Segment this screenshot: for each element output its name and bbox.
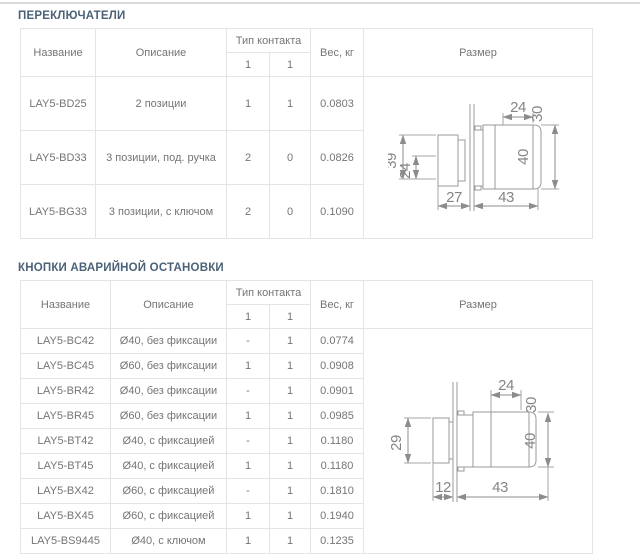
name-cell: LAY5-BX45 — [21, 504, 111, 529]
contact1-cell: 1 — [227, 354, 270, 379]
table-row: LAY5-BC42 Ø40, без фиксации - 1 0.0774 — [21, 329, 593, 354]
description-cell: Ø40, с фиксацией — [111, 429, 227, 454]
contact2-cell: 1 — [270, 479, 311, 504]
dim-top-right: 30 — [523, 397, 540, 413]
description-cell: Ø40, с ключом — [111, 529, 227, 554]
col-header-weight: Вес, кг — [311, 281, 364, 329]
dim-top: 24 — [498, 377, 514, 394]
col-subheader-contact-1: 1 — [227, 53, 270, 77]
button-outline — [433, 418, 449, 463]
name-cell: LAY5-BR45 — [21, 404, 111, 429]
description-cell: Ø40, без фиксации — [111, 379, 227, 404]
dim-right: 40 — [515, 149, 532, 165]
dim-top-right: 30 — [529, 106, 546, 122]
page-top-divider — [0, 2, 640, 4]
col-header-name: Название — [21, 281, 111, 329]
weight-cell: 0.1180 — [311, 454, 364, 479]
contact1-cell: - — [227, 329, 270, 354]
contact2-cell: 1 — [270, 77, 311, 131]
contact1-cell: - — [227, 429, 270, 454]
knob-step — [458, 140, 465, 181]
size-drawing-cell: 39 24 24 30 40 27 43 — [364, 77, 593, 239]
contact1-cell: - — [227, 379, 270, 404]
contact1-cell: 2 — [227, 131, 270, 185]
weight-cell: 0.0803 — [311, 77, 364, 131]
name-cell: LAY5-BR42 — [21, 379, 111, 404]
weight-cell: 0.0908 — [311, 354, 364, 379]
dim-bottom-left: 12 — [435, 479, 451, 496]
contact2-cell: 1 — [270, 454, 311, 479]
estop-dimension-drawing: 29 24 30 40 12 43 — [388, 375, 568, 507]
description-cell: Ø40, без фиксации — [111, 329, 227, 354]
col-subheader-contact-1: 1 — [227, 305, 270, 329]
contact2-cell: 1 — [270, 329, 311, 354]
weight-cell: 0.0826 — [311, 131, 364, 185]
col-subheader-contact-2: 1 — [270, 305, 311, 329]
name-cell: LAY5-BG33 — [21, 185, 96, 239]
weight-cell: 0.0985 — [311, 404, 364, 429]
contact2-cell: 0 — [270, 131, 311, 185]
name-cell: LAY5-BT42 — [21, 429, 111, 454]
description-cell: 2 позиции — [96, 77, 227, 131]
dim-bottom-right: 43 — [492, 479, 508, 496]
col-header-contact-type: Тип контакта — [227, 29, 311, 53]
name-cell: LAY5-BD33 — [21, 131, 96, 185]
dim-bottom-right: 43 — [498, 189, 514, 206]
col-header-name: Название — [21, 29, 96, 77]
name-cell: LAY5-BD25 — [21, 77, 96, 131]
col-header-description: Описание — [111, 281, 227, 329]
contact2-cell: 1 — [270, 504, 311, 529]
contact2-cell: 1 — [270, 529, 311, 554]
contact1-cell: - — [227, 479, 270, 504]
col-header-weight: Вес, кг — [311, 29, 364, 77]
button-step — [449, 422, 453, 459]
name-cell: LAY5-BC42 — [21, 329, 111, 354]
description-cell: 3 позиции, с ключом — [96, 185, 227, 239]
dim-left-outer: 29 — [388, 435, 405, 451]
weight-cell: 0.1090 — [311, 185, 364, 239]
weight-cell: 0.1180 — [311, 429, 364, 454]
contact1-cell: 1 — [227, 404, 270, 429]
description-cell: Ø60, без фиксации — [111, 354, 227, 379]
dim-top: 24 — [510, 99, 526, 116]
contact2-cell: 0 — [270, 185, 311, 239]
dim-left-inner: 24 — [397, 163, 414, 179]
contact1-cell: 1 — [227, 454, 270, 479]
contact1-cell: 2 — [227, 185, 270, 239]
switch-dimension-drawing: 39 24 24 30 40 27 43 — [388, 99, 568, 217]
col-header-description: Описание — [96, 29, 227, 77]
contact1-cell: 1 — [227, 77, 270, 131]
table-row: LAY5-BD25 2 позиции 1 1 0.0803 — [21, 77, 593, 131]
knob-outline — [438, 135, 458, 186]
description-cell: Ø60, с фиксацией — [111, 479, 227, 504]
estop-table: Название Описание Тип контакта Вес, кг Р… — [20, 280, 593, 554]
section-title-switches: ПЕРЕКЛЮЧАТЕЛИ — [18, 10, 640, 22]
contact2-cell: 1 — [270, 379, 311, 404]
name-cell: LAY5-BC45 — [21, 354, 111, 379]
col-subheader-contact-2: 1 — [270, 53, 311, 77]
weight-cell: 0.1235 — [311, 529, 364, 554]
switches-table: Название Описание Тип контакта Вес, кг Р… — [20, 28, 593, 239]
contact1-cell: 1 — [227, 504, 270, 529]
col-header-size: Размер — [364, 281, 593, 329]
weight-cell: 0.0901 — [311, 379, 364, 404]
col-header-size: Размер — [364, 29, 593, 77]
dim-bottom-left: 27 — [446, 189, 462, 206]
contact1-cell: 1 — [227, 529, 270, 554]
weight-cell: 0.0774 — [311, 329, 364, 354]
name-cell: LAY5-BT45 — [21, 454, 111, 479]
description-cell: 3 позиции, под. ручка — [96, 131, 227, 185]
size-drawing-cell: 29 24 30 40 12 43 — [364, 329, 593, 554]
section-title-estop: КНОПКИ АВАРИЙНОЙ ОСТАНОВКИ — [18, 262, 640, 274]
description-cell: Ø60, без фиксации — [111, 404, 227, 429]
name-cell: LAY5-BX42 — [21, 479, 111, 504]
description-cell: Ø60, с фиксацией — [111, 504, 227, 529]
weight-cell: 0.1940 — [311, 504, 364, 529]
col-header-contact-type: Тип контакта — [227, 281, 311, 305]
contact2-cell: 1 — [270, 404, 311, 429]
contact2-cell: 1 — [270, 429, 311, 454]
name-cell: LAY5-BS9445 — [21, 529, 111, 554]
weight-cell: 0.1810 — [311, 479, 364, 504]
dim-right: 40 — [522, 433, 539, 449]
description-cell: Ø40, с фиксацией — [111, 454, 227, 479]
contact2-cell: 1 — [270, 354, 311, 379]
